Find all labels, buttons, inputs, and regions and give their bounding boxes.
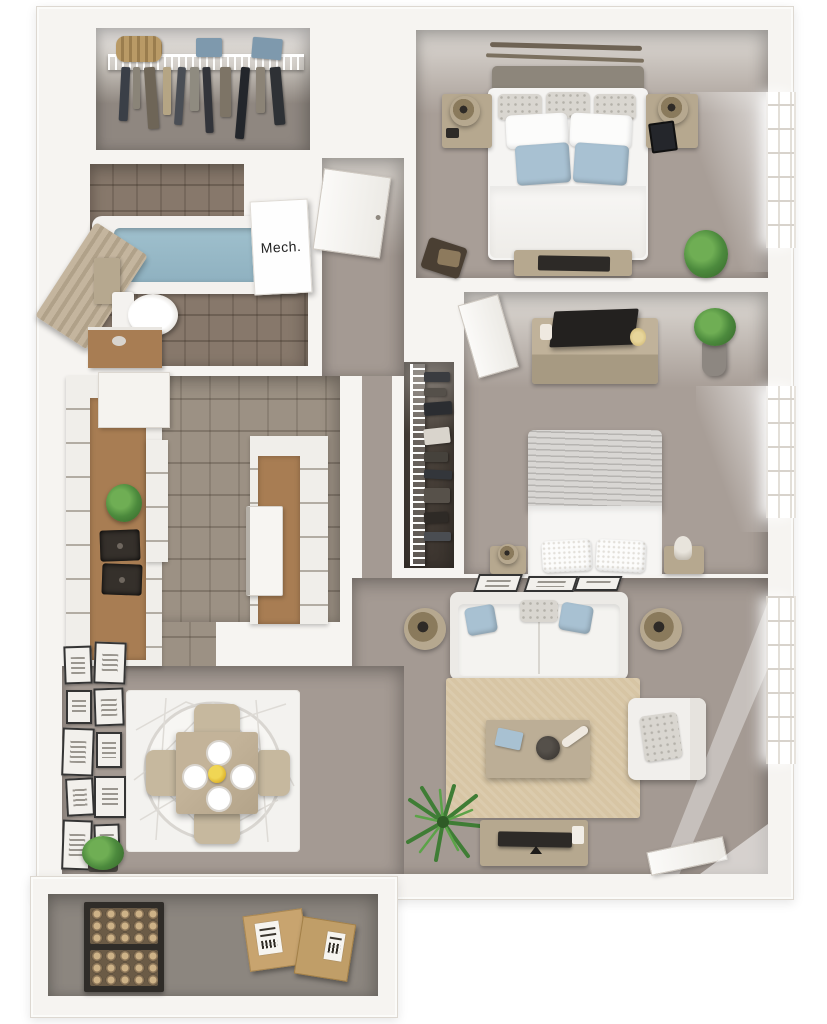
gallery-frame: [94, 776, 126, 818]
armchair-back: [690, 698, 706, 780]
living-tv: [498, 831, 572, 847]
hanging-garment: [424, 388, 446, 396]
bed2-lamp-left: [498, 544, 518, 564]
sink-drain: [119, 577, 125, 583]
bed1-lamp-left: [450, 96, 480, 126]
bed2-pillow: [541, 539, 593, 574]
hanging-garment: [424, 532, 451, 541]
sofa-blue-pillow: [558, 601, 594, 634]
palm-plant: [402, 780, 484, 864]
gallery-frame: [63, 646, 92, 685]
gallery-frame: [66, 690, 92, 724]
coffee-table-bowl: [536, 736, 560, 760]
living-room-window: [766, 596, 796, 764]
folded-item: [423, 427, 451, 446]
mech-label: Mech.: [260, 238, 301, 256]
box-shipping-label: [323, 931, 345, 961]
dining-chair-east: [258, 750, 290, 796]
hanging-garment: [424, 401, 453, 416]
sink-drain: [117, 543, 123, 549]
window-light: [696, 386, 768, 532]
bedroom1-window: [766, 92, 796, 248]
kitchen-plant: [106, 484, 142, 522]
hanging-garment: [163, 67, 171, 115]
firewood-logs-top: [90, 908, 158, 944]
kitchen-doorway-floor: [162, 622, 216, 668]
gallery-frame: [61, 727, 95, 776]
armchair-pillow: [639, 712, 683, 763]
dining-plant: [82, 836, 124, 870]
bed2-lamp-right: [674, 536, 692, 560]
mech-unit-box: Mech.: [250, 199, 313, 296]
box-shipping-label: [255, 920, 283, 955]
corridor-floor: [362, 376, 392, 580]
cardboard-box: [294, 916, 356, 982]
closet2-wire-shelf: [410, 364, 425, 566]
vanity-sink: [112, 336, 126, 346]
hanging-garment: [190, 67, 199, 111]
hanging-garment: [133, 67, 140, 109]
bed1-lamp-right: [658, 94, 688, 124]
place-setting: [206, 786, 232, 812]
dresser-lamp: [630, 328, 646, 346]
wall-frame: [473, 574, 523, 592]
hanging-garment: [424, 511, 449, 523]
bedroom2-plant: [694, 308, 736, 346]
firewood-logs-bottom: [90, 950, 158, 986]
bathroom-vanity: [88, 330, 162, 368]
kitchen-cabinet-faces: [146, 440, 168, 562]
gallery-frame: [96, 732, 122, 768]
folded-shirt: [251, 37, 283, 61]
hanging-garment: [424, 469, 452, 479]
door-knob: [375, 215, 381, 221]
bedroom1-plant: [684, 230, 728, 278]
gallery-frame: [93, 687, 124, 726]
yellow-centerpiece: [208, 765, 226, 783]
hanging-garment: [424, 452, 448, 462]
wall-frame: [523, 576, 578, 592]
floor-plan-render: Mech.: [0, 0, 827, 1024]
bed1-blue-pillow: [573, 142, 630, 186]
nightstand-decor: [446, 128, 459, 138]
kitchen-range: [246, 506, 283, 596]
dining-chair-south: [194, 812, 240, 844]
dining-chair-west: [146, 750, 178, 796]
bed2-blanket: [528, 430, 662, 510]
entry-door: [313, 168, 392, 259]
hanging-garment: [220, 67, 231, 117]
hanging-garment: [424, 372, 450, 382]
nightstand-tablet: [648, 120, 678, 153]
folded-shirt: [196, 38, 222, 57]
gallery-frame: [65, 777, 95, 816]
sofa-patterned-pillow: [520, 600, 558, 622]
hanging-garment: [256, 67, 265, 113]
bed1-duvet: [490, 186, 646, 258]
console-decor: [572, 826, 584, 844]
bed2-pillow: [595, 539, 647, 574]
place-setting: [182, 764, 208, 790]
duffel-bag: [116, 36, 162, 62]
hanging-garment: [424, 488, 450, 503]
place-setting: [230, 764, 256, 790]
living-lamp-left: [404, 608, 446, 650]
bed1-tv: [538, 255, 610, 271]
place-setting: [206, 740, 232, 766]
bed1-blue-pillow: [515, 142, 572, 186]
bedroom2-tv: [549, 309, 639, 348]
wall-frame: [574, 576, 623, 591]
kitchen-upper-cabinet: [98, 372, 170, 428]
bedroom2-window: [766, 386, 796, 518]
gallery-frame: [93, 641, 126, 684]
living-lamp-right: [640, 608, 682, 650]
dresser-decor: [540, 324, 552, 340]
sofa-blue-pillow: [464, 604, 498, 637]
